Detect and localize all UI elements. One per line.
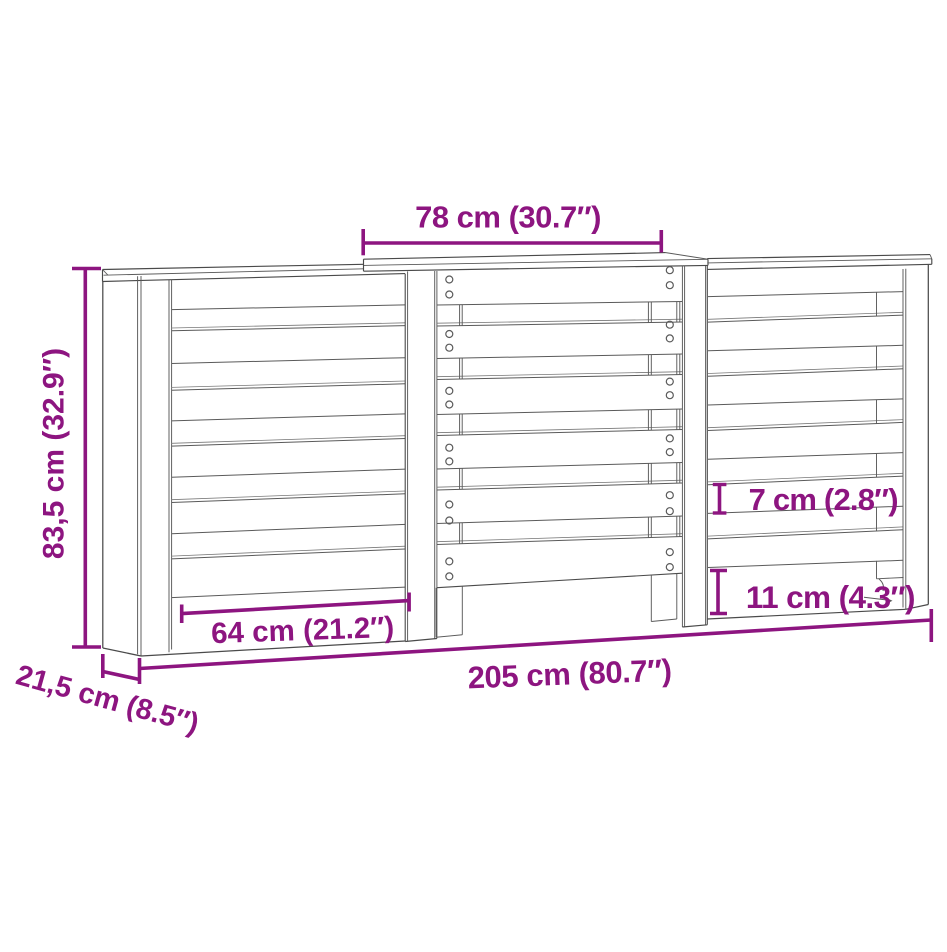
svg-text:11 cm (4.3″): 11 cm (4.3″): [746, 579, 915, 615]
svg-text:7 cm (2.8″): 7 cm (2.8″): [749, 482, 898, 517]
svg-text:78 cm (30.7″): 78 cm (30.7″): [415, 200, 601, 235]
svg-text:64 cm (21.2″): 64 cm (21.2″): [211, 611, 395, 650]
svg-text:83,5 cm (32.9″): 83,5 cm (32.9″): [38, 348, 71, 559]
svg-text:205 cm (80.7″): 205 cm (80.7″): [467, 653, 672, 696]
